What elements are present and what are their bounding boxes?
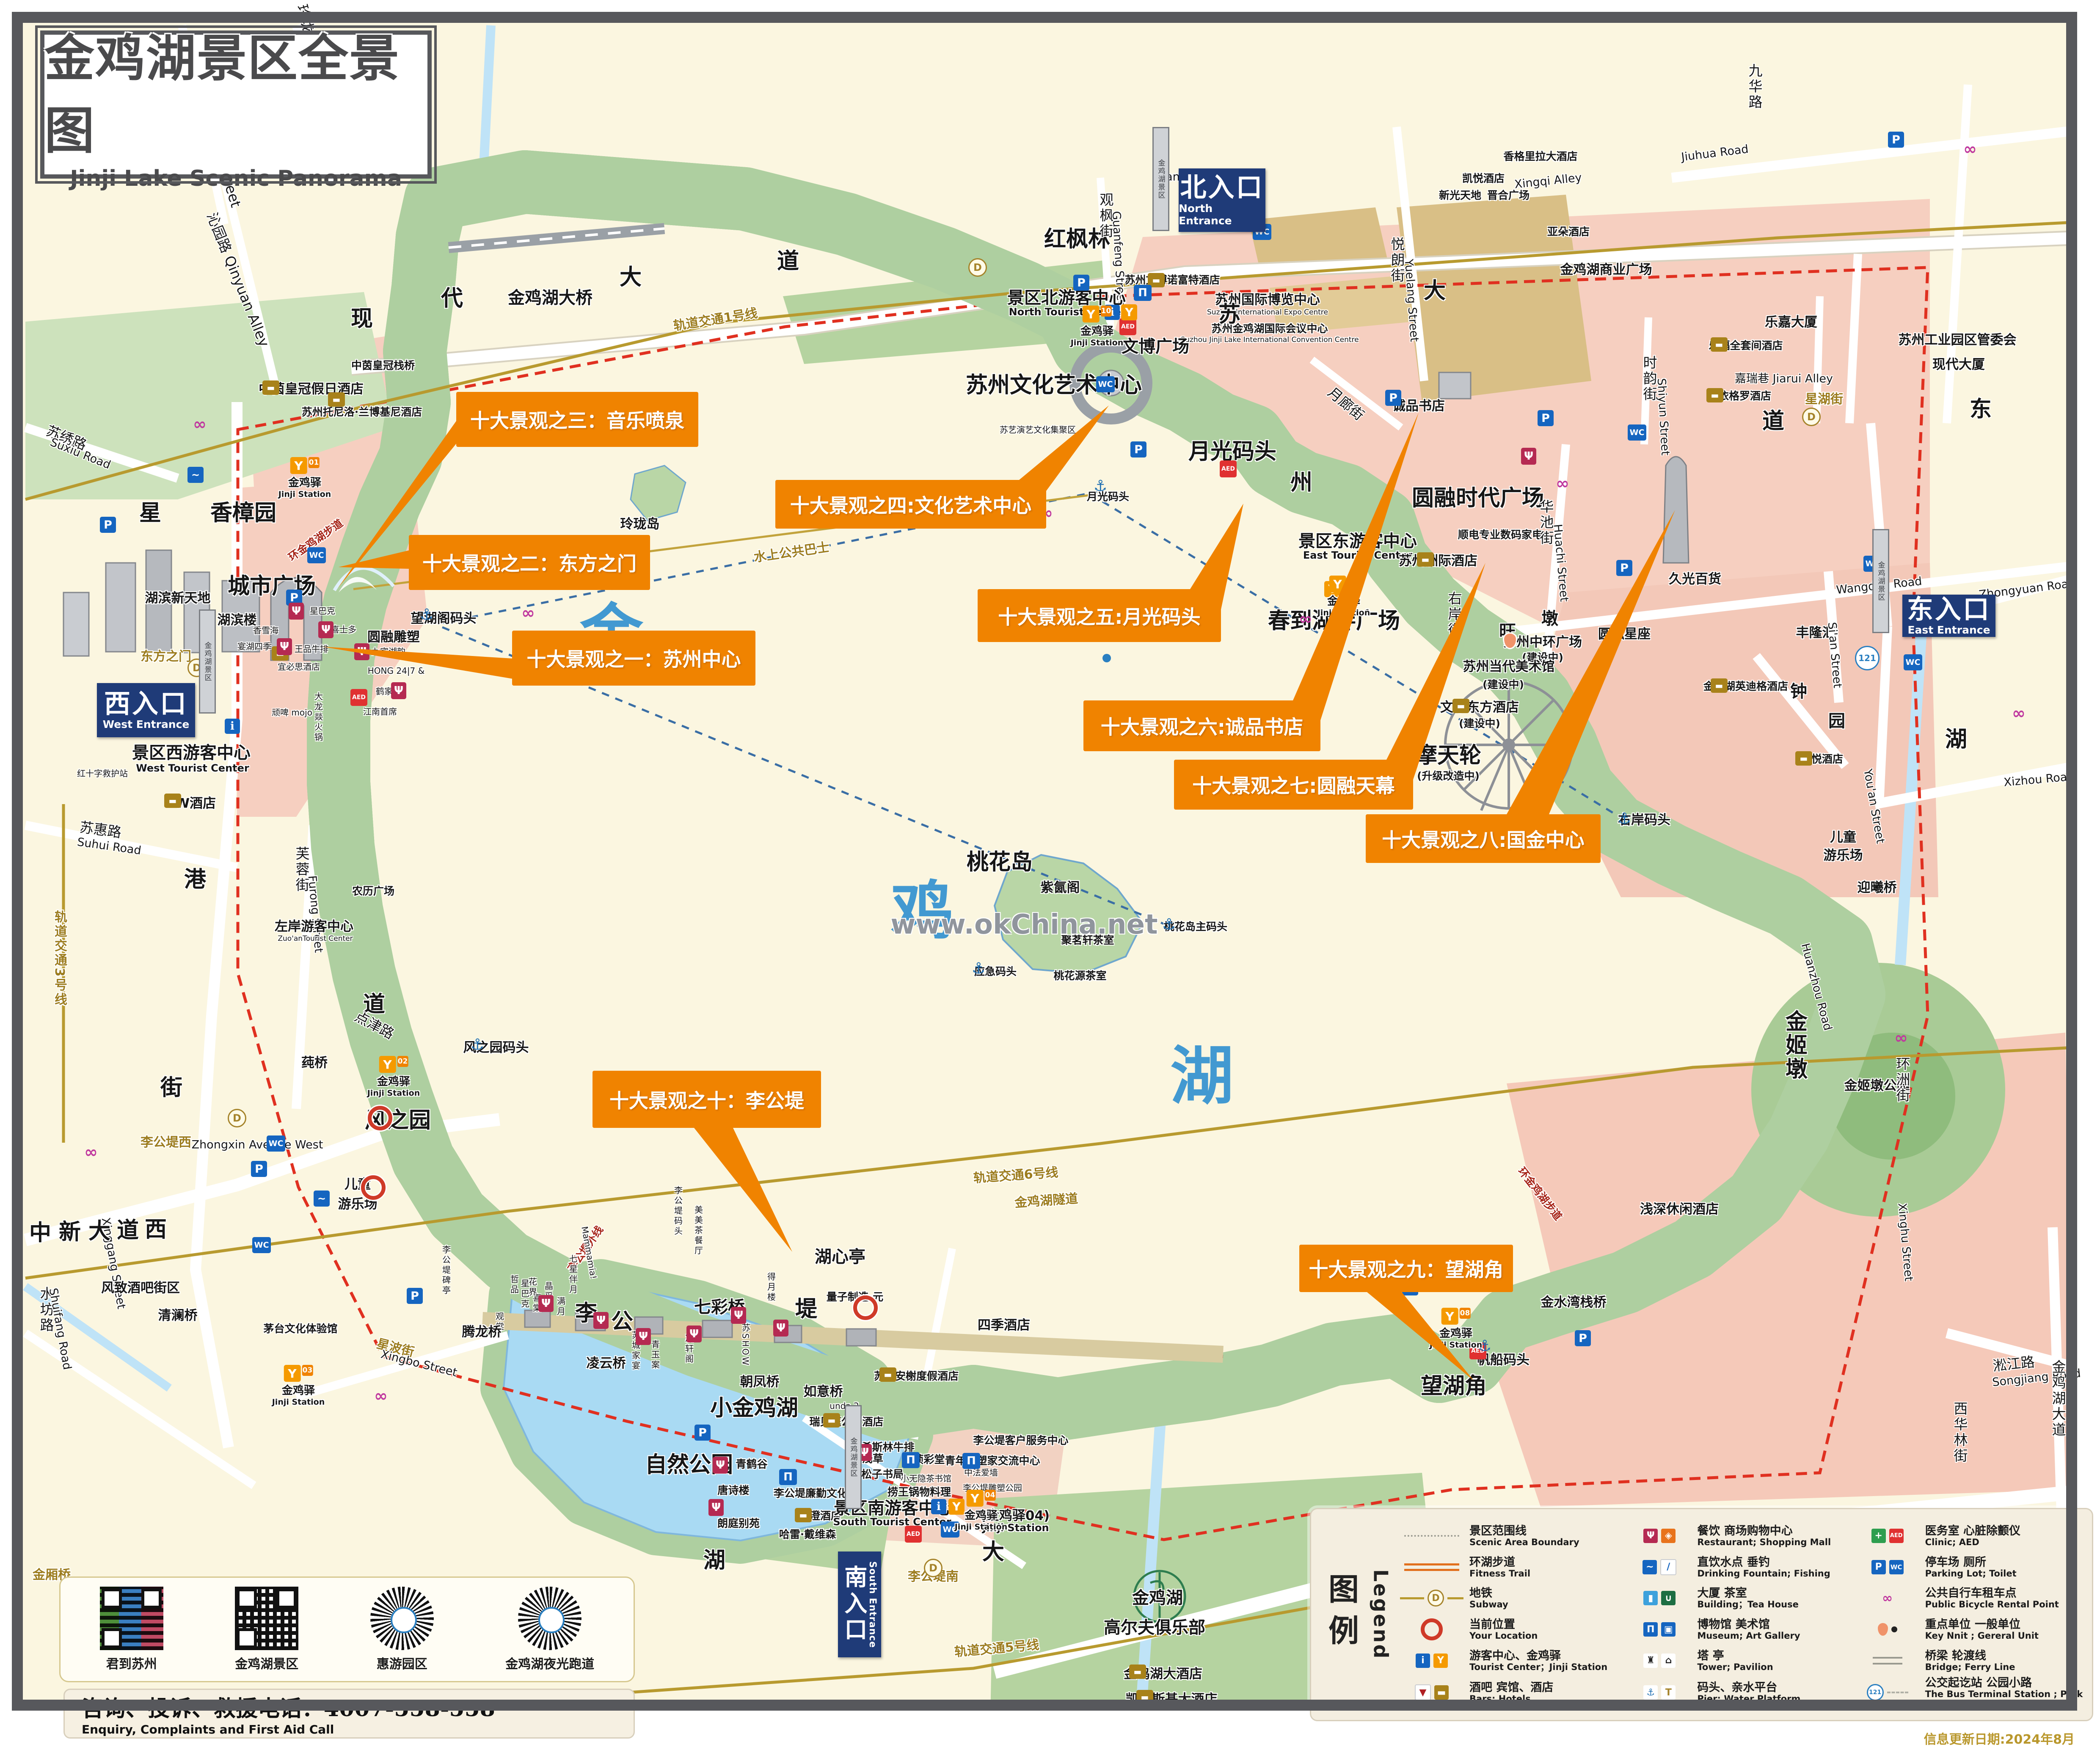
- legend-item-text: 码头、亲水平台Pier; Water Platform: [1697, 1681, 1800, 1704]
- qr-corner: [102, 1628, 122, 1648]
- subway-line-icon: [1447, 1597, 1463, 1599]
- legend-item-zh: 当前位置: [1469, 1618, 1538, 1631]
- legend-item-en: Fitness Trail: [1469, 1569, 1530, 1579]
- hotline-zh: 咨询、投诉、救援电话：4007-558-558: [82, 1691, 634, 1722]
- qr-code: [370, 1587, 434, 1650]
- legend-item: PWC停车场 厕所Parking Lot; Toilet: [1856, 1552, 2083, 1583]
- trail-line-icon: [1404, 1563, 1459, 1571]
- legend-grid: 景区范围线Scenic Area Boundary环湖步道Fitness Tra…: [1400, 1509, 2092, 1720]
- subway-line-icon: [1400, 1597, 1424, 1599]
- sight-callout: 十大景观之六:诚品书店: [1083, 700, 1320, 751]
- callout-tails: [0, 0, 2100, 1750]
- legend-item-en: Bridge; Ferry Line: [1925, 1662, 2015, 1672]
- legend-item-text: 大厦 茶室Building；Tea House: [1697, 1587, 1799, 1609]
- legend-item-en: Pier; Water Platform: [1697, 1694, 1800, 1704]
- legend-tower-icon: ⌂: [1661, 1654, 1676, 1668]
- legend-item-zh: 公共自行车租车点: [1925, 1587, 2059, 1600]
- legend-sample-bld: ▮∪: [1628, 1591, 1691, 1605]
- map-title: 金鸡湖景区全景图 Jinji Lake Scenic Panorama: [40, 30, 432, 179]
- qr-item: 惠游园区: [370, 1587, 434, 1672]
- legend-item-text: 塔 亭Tower; Pavilion: [1697, 1649, 1773, 1672]
- legend-item-text: 医务室 心脏除颤仪Clinic; AED: [1925, 1524, 2020, 1547]
- legend-sample-trail: [1400, 1563, 1463, 1571]
- sight-callout: 十大景观之七:圆融天幕: [1174, 760, 1413, 810]
- legend-drink-icon: /: [1660, 1559, 1676, 1575]
- sight-callout: 十大景观之九：望湖角: [1299, 1245, 1513, 1292]
- legend-item-text: 景区范围线Scenic Area Boundary: [1469, 1524, 1579, 1547]
- legend-item-zh: 大厦 茶室: [1697, 1587, 1799, 1600]
- legend-bike-icon: ∞: [1880, 1591, 1895, 1605]
- qr-corner: [102, 1588, 122, 1609]
- legend-item-en: Scenic Area Boundary: [1469, 1538, 1579, 1547]
- legend-item-zh: 塔 亭: [1697, 1649, 1773, 1662]
- legend-item-text: 直饮水点 垂钓Drinking Fountain; Fishing: [1697, 1556, 1830, 1579]
- map-title-en: Jinji Lake Scenic Panorama: [70, 166, 402, 191]
- legend-item-en: Bars; Hotels: [1469, 1694, 1553, 1704]
- legend-item: ▮∪大厦 茶室Building；Tea House: [1628, 1583, 1855, 1614]
- legend-item-text: 重点单位 一般单位Key Nnit ; Gereral Unit: [1925, 1618, 2039, 1641]
- callout-tail: [1507, 510, 1675, 814]
- legend-tc-icon: Y: [1433, 1654, 1448, 1668]
- sight-callout: 十大景观之一：苏州中心: [512, 631, 755, 686]
- legend-item: ∞公共自行车租车点Public Bicycle Rental Point: [1856, 1583, 2083, 1614]
- legend-title: 图例 Legend: [1311, 1509, 1400, 1720]
- sight-callout: 十大景观之十：李公堤: [593, 1071, 821, 1128]
- legend-sample-tc: iY: [1400, 1654, 1463, 1668]
- legend-item-text: 地铁Subway: [1469, 1587, 1508, 1609]
- update-note: 信息更新日期:2024年8月: [1924, 1729, 2075, 1747]
- sight-callout: 十大景观之二：东方之门: [409, 535, 650, 590]
- legend-item-text: 公交起讫站 公园小路The Bus Terminal Station ; Par…: [1925, 1676, 2083, 1709]
- legend-subway-icon: D: [1428, 1590, 1444, 1607]
- legend-title-en: Legend: [1370, 1569, 1392, 1660]
- legend-item-en: Public Bicycle Rental Point: [1925, 1600, 2059, 1609]
- legend-item: Π▣博物馆 美术馆Museum; Art Gallery: [1628, 1614, 1855, 1645]
- legend-item: ~/直饮水点 垂钓Drinking Fountain; Fishing: [1628, 1552, 1855, 1583]
- general-unit-icon: [1891, 1626, 1897, 1632]
- legend-bar-icon: ▬: [1434, 1685, 1449, 1700]
- sight-callout: 十大景观之三：音乐喷泉: [456, 392, 698, 447]
- legend: 图例 Legend 景区范围线Scenic Area Boundary环湖步道F…: [1310, 1508, 2093, 1721]
- legend-item-en: Key Nnit ; Gereral Unit: [1925, 1631, 2039, 1641]
- legend-tower-icon: ♜: [1643, 1654, 1658, 1668]
- boundary-line-icon: [1404, 1535, 1459, 1537]
- legend-rest-icon: Ψ: [1643, 1529, 1658, 1543]
- legend-item: 重点单位 一般单位Key Nnit ; Gereral Unit: [1856, 1614, 2083, 1645]
- legend-item-text: 停车场 厕所Parking Lot; Toilet: [1925, 1556, 2017, 1579]
- legend-item-zh: 游客中心、金鸡驿: [1469, 1649, 1607, 1662]
- legend-pier-icon: ⚓: [1643, 1685, 1658, 1700]
- legend-pier-icon: T: [1661, 1685, 1676, 1700]
- legend-sample-bus: 121: [1856, 1684, 1919, 1701]
- qr-corner: [276, 1588, 297, 1609]
- qr-item: 金鸡湖景区: [235, 1587, 298, 1672]
- legend-sample-location: [1400, 1618, 1463, 1640]
- legend-item: 景区范围线Scenic Area Boundary: [1400, 1520, 1628, 1552]
- legend-item-zh: 博物馆 美术馆: [1697, 1618, 1800, 1631]
- legend-bar-icon: ▼: [1415, 1684, 1431, 1700]
- legend-item: Ψ◈餐饮 商场购物中心Restaurant; Shopping Mall: [1628, 1520, 1855, 1552]
- legend-item-text: 当前位置Your Location: [1469, 1618, 1538, 1641]
- legend-sample-pier: ⚓T: [1628, 1685, 1691, 1700]
- legend-item-text: 餐饮 商场购物中心Restaurant; Shopping Mall: [1697, 1524, 1831, 1547]
- sight-callout: 十大景观之四:文化艺术中心: [775, 480, 1046, 529]
- callout-tail: [1386, 563, 1485, 780]
- legend-drink-icon: ~: [1643, 1560, 1657, 1574]
- legend-item-zh: 餐饮 商场购物中心: [1697, 1524, 1831, 1538]
- qr-item: 金鸡湖夜光跑道: [505, 1587, 594, 1672]
- legend-item: +AED医务室 心脏除颤仪Clinic; AED: [1856, 1520, 2083, 1552]
- key-unit-icon: [1878, 1623, 1888, 1636]
- legend-item-en: Clinic; AED: [1925, 1538, 2020, 1547]
- qr-corner: [237, 1588, 257, 1609]
- legend-bld-icon: ∪: [1661, 1591, 1676, 1605]
- legend-item-text: 博物馆 美术馆Museum; Art Gallery: [1697, 1618, 1800, 1641]
- legend-item-en: Your Location: [1469, 1631, 1538, 1641]
- legend-item-en: Restaurant; Shopping Mall: [1697, 1538, 1831, 1547]
- legend-clinic-icon: AED: [1889, 1529, 1904, 1543]
- legend-sample-bar: ▼▬: [1400, 1684, 1463, 1700]
- legend-bld-icon: ▮: [1643, 1591, 1658, 1605]
- callout-tail: [1367, 1292, 1474, 1381]
- legend-park-icon: WC: [1889, 1560, 1904, 1574]
- hotline-panel: 咨询、投诉、救援电话：4007-558-558 Enquiry, Complai…: [63, 1689, 635, 1739]
- legend-sample-unit: [1856, 1623, 1919, 1636]
- legend-item: 环湖步道Fitness Trail: [1400, 1552, 1628, 1583]
- legend-item-text: 酒吧 宾馆、酒店Bars; Hotels: [1469, 1681, 1553, 1704]
- qr-label: 金鸡湖夜光跑道: [505, 1654, 594, 1672]
- callout-tail: [694, 1128, 792, 1252]
- legend-item-text: 桥梁 轮渡线Bridge; Ferry Line: [1925, 1649, 2015, 1672]
- legend-item-zh: 码头、亲水平台: [1697, 1681, 1800, 1694]
- legend-item-zh: 公交起讫站 公园小路: [1925, 1676, 2083, 1689]
- legend-park-icon: P: [1871, 1560, 1886, 1574]
- legend-item-zh: 直饮水点 垂钓: [1697, 1556, 1830, 1569]
- legend-sample-clinic: +AED: [1856, 1529, 1919, 1543]
- qr-corner: [141, 1588, 162, 1609]
- legend-item-text: 游客中心、金鸡驿Tourist Center；Jinji Station: [1469, 1649, 1607, 1672]
- callout-tail: [322, 647, 513, 679]
- legend-mus-icon: ▣: [1661, 1622, 1676, 1637]
- legend-item-zh: 医务室 心脏除颤仪: [1925, 1524, 2020, 1538]
- callout-tail: [1293, 413, 1419, 720]
- legend-item: ⚓T码头、亲水平台Pier; Water Platform: [1628, 1676, 1855, 1709]
- legend-item: ♜⌂塔 亭Tower; Pavilion: [1628, 1645, 1855, 1676]
- legend-item: ▼▬酒吧 宾馆、酒店Bars; Hotels: [1400, 1676, 1628, 1709]
- legend-item-en: Parking Lot; Toilet: [1925, 1569, 2017, 1579]
- qr-label: 金鸡湖景区: [235, 1654, 298, 1672]
- legend-sample-tower: ♜⌂: [1628, 1654, 1691, 1668]
- legend-sample-bridge: [1856, 1657, 1919, 1665]
- legend-item: 121公交起讫站 公园小路The Bus Terminal Station ; …: [1856, 1676, 2083, 1709]
- legend-item-en: Tower; Pavilion: [1697, 1662, 1773, 1672]
- legend-sample-drink: ~/: [1628, 1559, 1691, 1575]
- legend-item-text: 公共自行车租车点Public Bicycle Rental Point: [1925, 1587, 2059, 1609]
- legend-item-zh: 桥梁 轮渡线: [1925, 1649, 2015, 1662]
- park-lane-icon: [1887, 1692, 1908, 1693]
- legend-item: D地铁Subway: [1400, 1583, 1628, 1614]
- qr-item: 君到苏州: [100, 1587, 163, 1672]
- legend-tc-icon: i: [1416, 1654, 1430, 1668]
- callout-tail: [1019, 405, 1109, 491]
- bridge-icon: [1873, 1657, 1902, 1665]
- qr-code: [518, 1587, 581, 1650]
- legend-item-zh: 景区范围线: [1469, 1524, 1579, 1538]
- hotline-en: Enquiry, Complaints and First Aid Call: [82, 1722, 634, 1736]
- legend-item: 桥梁 轮渡线Bridge; Ferry Line: [1856, 1645, 2083, 1676]
- map-title-zh: 金鸡湖景区全景图: [44, 18, 427, 163]
- legend-item-en: Museum; Art Gallery: [1697, 1631, 1800, 1641]
- legend-item-text: 环湖步道Fitness Trail: [1469, 1556, 1530, 1579]
- qr-panel: 君到苏州金鸡湖景区惠游园区金鸡湖夜光跑道: [59, 1576, 635, 1682]
- legend-sample-boundary: [1400, 1535, 1463, 1537]
- legend-rest-icon: ◈: [1661, 1529, 1676, 1543]
- legend-clinic-icon: +: [1871, 1529, 1886, 1543]
- legend-sample-bike: ∞: [1856, 1591, 1919, 1605]
- qr-label: 惠游园区: [377, 1654, 427, 1672]
- legend-mus-icon: Π: [1643, 1622, 1658, 1637]
- legend-item-en: The Bus Terminal Station ; Park Lane: [1925, 1689, 2083, 1709]
- qr-code: [235, 1587, 298, 1650]
- legend-item-en: Drinking Fountain; Fishing: [1697, 1569, 1830, 1579]
- legend-item-zh: 重点单位 一般单位: [1925, 1618, 2039, 1631]
- your-location-icon: [1421, 1618, 1443, 1640]
- map-stage: 金鸡湖景区全景图 Jinji Lake Scenic Panorama 玲珑街 …: [0, 0, 2100, 1750]
- legend-item-en: Building；Tea House: [1697, 1600, 1799, 1609]
- legend-item: iY游客中心、金鸡驿Tourist Center；Jinji Station: [1400, 1645, 1628, 1676]
- callout-tail: [339, 550, 410, 569]
- legend-sample-mus: Π▣: [1628, 1622, 1691, 1637]
- qr-corner: [237, 1628, 257, 1648]
- legend-item-zh: 环湖步道: [1469, 1556, 1530, 1569]
- legend-sample-subway: D: [1400, 1590, 1463, 1607]
- sight-callout: 十大景观之八:国金中心: [1366, 814, 1601, 863]
- legend-title-zh: 图例: [1319, 1573, 1364, 1656]
- legend-sample-park: PWC: [1856, 1560, 1919, 1574]
- legend-item-zh: 地铁: [1469, 1587, 1508, 1600]
- sight-callout: 十大景观之五:月光码头: [978, 589, 1221, 642]
- qr-label: 君到苏州: [106, 1654, 157, 1672]
- qr-code: [100, 1587, 163, 1650]
- legend-item-en: Subway: [1469, 1600, 1508, 1609]
- legend-item-zh: 酒吧 宾馆、酒店: [1469, 1681, 1553, 1694]
- legend-item-zh: 停车场 厕所: [1925, 1556, 2017, 1569]
- legend-item-en: Tourist Center；Jinji Station: [1469, 1662, 1607, 1672]
- legend-bus-icon: 121: [1867, 1684, 1884, 1701]
- legend-item: 当前位置Your Location: [1400, 1614, 1628, 1645]
- legend-sample-rest: Ψ◈: [1628, 1529, 1691, 1543]
